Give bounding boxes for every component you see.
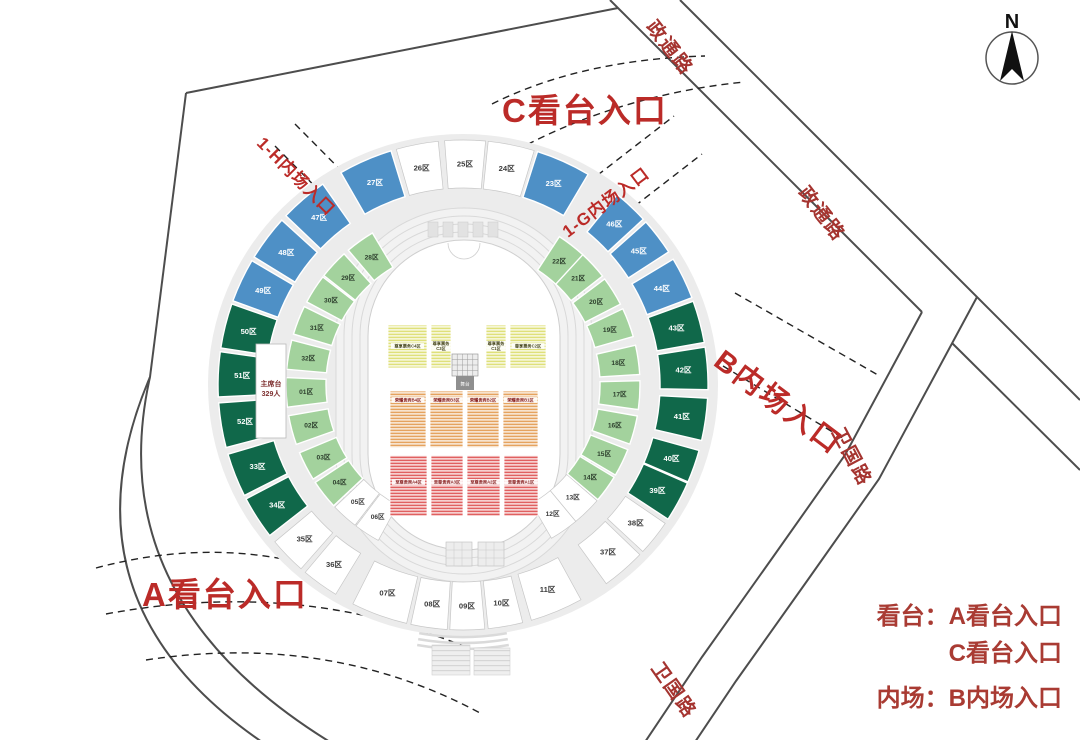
infield-block-label: 尊享票务C4区 [394, 343, 421, 350]
infield-block-尊享票务C1[interactable]: 尊享票务C1区 [486, 325, 506, 368]
section-label-34: 34区 [269, 500, 285, 509]
boundary-left [150, 93, 186, 377]
section-label-36: 36区 [326, 560, 342, 569]
infield-block-尊享票务C3[interactable]: 尊享票务C3区 [431, 325, 451, 368]
section-label-07: 07区 [379, 588, 395, 597]
section-label-08: 08区 [424, 600, 440, 609]
legend: 看台：A看台入口 C看台入口 内场：B内场入口 [877, 598, 1062, 717]
section-label-40: 40区 [663, 454, 679, 463]
section-label-12: 12区 [546, 510, 560, 518]
infield-block-label: 荣耀贵宾B3区 [433, 397, 460, 404]
section-label-41: 41区 [674, 412, 690, 421]
rostrum-label-line2: 329人 [262, 389, 282, 398]
section-label-49: 49区 [255, 286, 271, 295]
compass-needle-icon [1000, 31, 1024, 81]
section-label-32: 32区 [301, 354, 315, 362]
section-label-26: 26区 [414, 164, 430, 173]
section-label-05: 05区 [351, 498, 365, 506]
section-label-42: 42区 [675, 366, 691, 375]
infield-block-荣耀贵宾B1[interactable]: 荣耀贵宾B1区 [503, 391, 538, 448]
infield-block-label: 荣耀贵宾B1区 [507, 397, 534, 404]
infield-block-label: 至尊贵宾A3区 [434, 479, 461, 486]
section-label-31: 31区 [310, 324, 324, 332]
stage-label: 舞台 [460, 381, 470, 388]
section-label-22: 22区 [552, 257, 566, 265]
boundary-top-left [186, 8, 618, 93]
section-label-27: 27区 [367, 178, 383, 187]
section-label-17: 17区 [613, 390, 627, 398]
infield-block-label: 至尊贵宾A1区 [508, 479, 535, 486]
legend-stands-line2: C看台入口 [877, 635, 1062, 672]
section-label-19: 19区 [603, 326, 617, 334]
section-label-46: 46区 [606, 220, 622, 229]
section-label-21: 21区 [571, 275, 585, 283]
section-label-48: 48区 [278, 248, 294, 257]
section-label-52: 52区 [237, 417, 253, 426]
south-steps-block-2 [474, 648, 510, 675]
legend-infield-line1: 内场：B内场入口 [877, 680, 1062, 717]
section-label-13: 13区 [566, 494, 580, 502]
legend-stands-line1: 看台：A看台入口 [877, 598, 1062, 635]
infield-block-至尊贵宾A2[interactable]: 至尊贵宾A2区 [467, 455, 500, 516]
infield-block-尊享票务C4[interactable]: 尊享票务C4区 [388, 325, 427, 368]
infield-block-label: 荣耀贵宾B2区 [470, 397, 497, 404]
section-label-18: 18区 [611, 359, 625, 367]
section-label-33: 33区 [249, 462, 265, 471]
section-label-37: 37区 [600, 548, 616, 557]
section-label-35: 35区 [297, 535, 313, 544]
section-label-23: 23区 [546, 179, 562, 188]
section-label-50: 50区 [241, 327, 257, 336]
infield-block-至尊贵宾A1[interactable]: 至尊贵宾A1区 [504, 455, 538, 516]
rostrum-label-line1: 主席台 [261, 379, 282, 388]
entrance-c-label: C看台入口 [502, 84, 668, 132]
section-label-38: 38区 [628, 519, 644, 528]
section-label-06: 06区 [371, 513, 385, 521]
stage: 舞台 [456, 376, 474, 390]
infield-block-label: 至尊贵宾A2区 [470, 479, 497, 486]
section-label-02: 02区 [304, 421, 318, 429]
section-label-11: 11区 [540, 585, 556, 594]
section-label-16: 16区 [608, 421, 622, 429]
stage-truss [452, 354, 478, 376]
section-label-04: 04区 [333, 478, 347, 486]
road-zhengtong-line2 [680, 0, 1080, 400]
infield-block-尊享票务C2[interactable]: 尊享票务C2区 [510, 325, 546, 368]
section-label-44: 44区 [654, 284, 670, 293]
road-zhengtong-line1b [952, 343, 1080, 470]
section-label-03: 03区 [317, 453, 331, 461]
section-label-30: 30区 [324, 296, 338, 304]
infield-block-荣耀贵宾B4[interactable]: 荣耀贵宾B4区 [390, 391, 426, 448]
infield-block-荣耀贵宾B2[interactable]: 荣耀贵宾B2区 [467, 391, 499, 448]
section-label-28: 28区 [365, 254, 379, 262]
section-label-24: 24区 [499, 164, 515, 173]
section-label-43: 43区 [668, 324, 684, 333]
section-label-14: 14区 [583, 473, 597, 481]
infield-block-label: 至尊贵宾A4区 [395, 479, 422, 486]
rostrum[interactable]: 主席台 329人 [256, 344, 286, 438]
section-label-10: 10区 [493, 598, 509, 607]
section-label-09: 09区 [459, 602, 475, 611]
compass-north-label: N [1005, 11, 1019, 33]
infield-block-至尊贵宾A3[interactable]: 至尊贵宾A3区 [431, 455, 463, 516]
north-compass: N [986, 11, 1038, 84]
entrance-a-label: A看台入口 [142, 568, 308, 616]
section-label-51: 51区 [234, 371, 250, 380]
guide-a-arc-3 [146, 653, 482, 714]
infield-block-荣耀贵宾B3[interactable]: 荣耀贵宾B3区 [430, 391, 463, 448]
section-label-39: 39区 [649, 486, 665, 495]
infield-block-至尊贵宾A4[interactable]: 至尊贵宾A4区 [390, 455, 427, 516]
section-label-29: 29区 [341, 274, 355, 282]
infield-block-label: 尊享票务C2区 [515, 343, 542, 350]
section-label-20: 20区 [589, 298, 603, 306]
section-label-45: 45区 [631, 247, 647, 256]
section-label-25: 25区 [457, 160, 473, 169]
section-label-01: 01区 [299, 388, 313, 396]
south-steps-block-1 [432, 645, 470, 675]
infield-block-label: 荣耀贵宾B4区 [395, 397, 422, 404]
section-label-15: 15区 [597, 450, 611, 458]
